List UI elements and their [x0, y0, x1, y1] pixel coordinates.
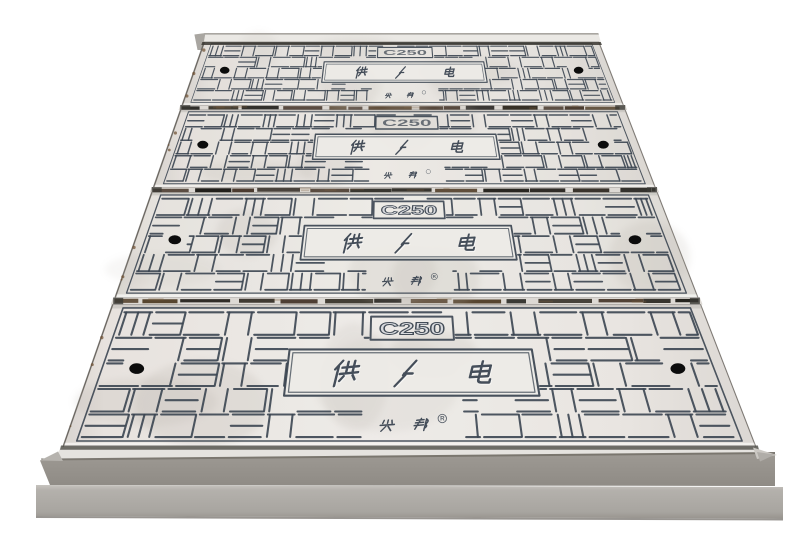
svg-text:C250: C250 — [381, 204, 437, 218]
svg-text:C250: C250 — [382, 118, 431, 128]
svg-text:C250: C250 — [383, 48, 427, 57]
svg-text:C250: C250 — [379, 319, 445, 338]
svg-text:R: R — [440, 416, 445, 423]
